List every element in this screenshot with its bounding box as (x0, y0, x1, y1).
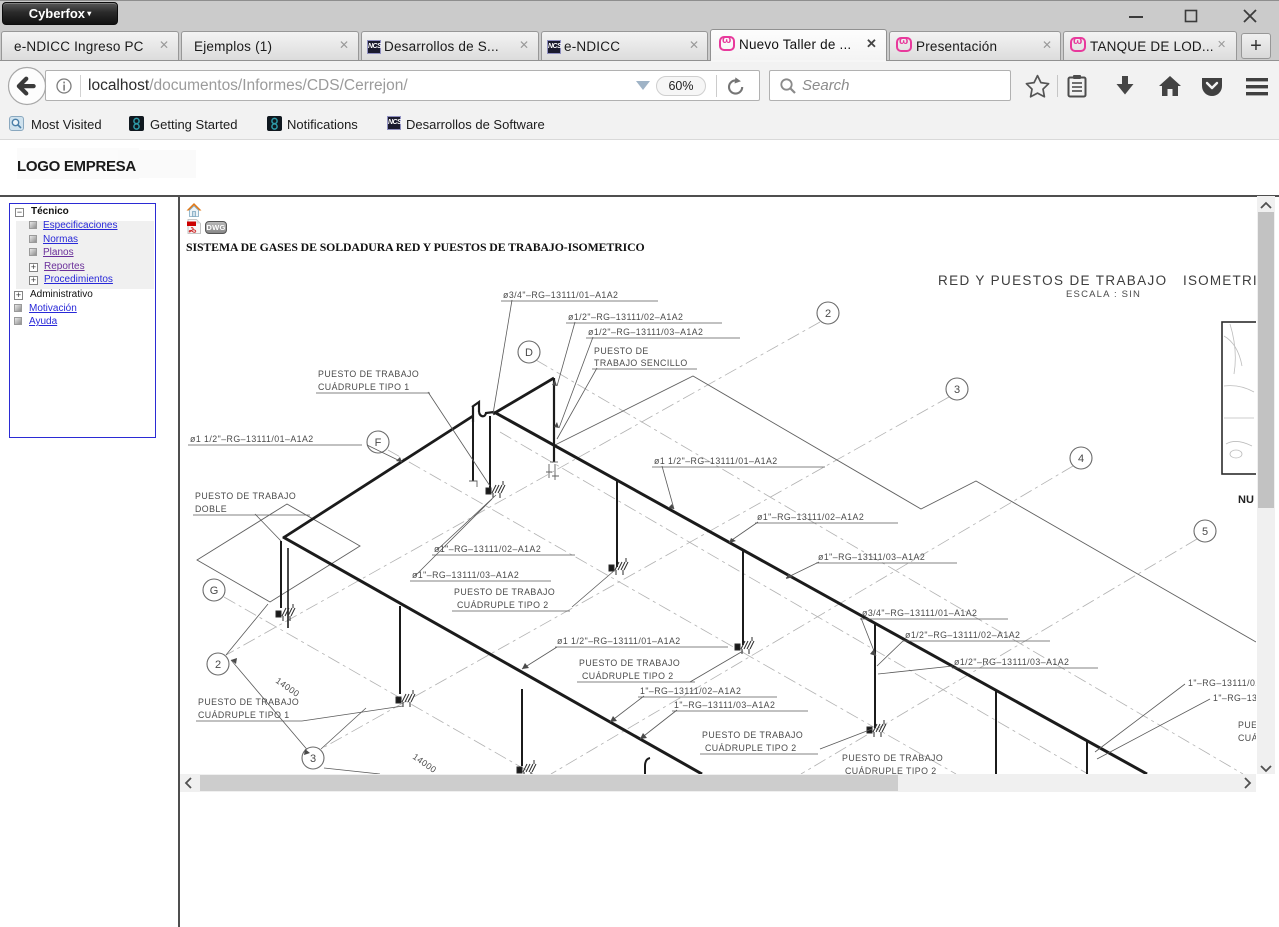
svg-text:1"–RG–13111/02–A1A2: 1"–RG–13111/02–A1A2 (1188, 678, 1256, 688)
svg-text:ø1"–RG–13111/02–A1A2: ø1"–RG–13111/02–A1A2 (434, 544, 541, 554)
svg-text:CUÁDRUPLE: CUÁDRUPLE (1238, 733, 1256, 743)
svg-text:ø1/2"–RG–13111/03–A1A2: ø1/2"–RG–13111/03–A1A2 (588, 327, 703, 337)
svg-text:NU: NU (1238, 494, 1254, 506)
svg-text:PUESTO DE TRABAJO: PUESTO DE TRABAJO (702, 730, 803, 740)
svg-text:CUÁDRUPLE TIPO 2: CUÁDRUPLE TIPO 2 (845, 766, 937, 774)
svg-text:ø3/4"–RG–13111/01–A1A2: ø3/4"–RG–13111/01–A1A2 (862, 608, 977, 618)
svg-text:5: 5 (1202, 526, 1208, 538)
svg-text:ø1"–RG–13111/03–A1A2: ø1"–RG–13111/03–A1A2 (412, 570, 519, 580)
svg-text:RED Y PUESTOS DE TRABAJO: RED Y PUESTOS DE TRABAJO (938, 273, 1167, 288)
svg-text:DOBLE: DOBLE (195, 504, 227, 514)
svg-text:ø1 1/2"–RG–13111/01–A1A2: ø1 1/2"–RG–13111/01–A1A2 (654, 456, 778, 466)
svg-text:CUÁDRUPLE TIPO 1: CUÁDRUPLE TIPO 1 (318, 382, 410, 392)
svg-text:3: 3 (310, 753, 316, 765)
svg-text:CUÁDRUPLE TIPO 2: CUÁDRUPLE TIPO 2 (457, 600, 549, 610)
svg-text:3: 3 (954, 384, 960, 396)
svg-text:F: F (375, 437, 382, 449)
svg-text:14000: 14000 (411, 751, 439, 774)
svg-text:PUESTO DE TRABAJO: PUESTO DE TRABAJO (842, 753, 943, 763)
svg-text:1"–RG–13111/02–A1A2: 1"–RG–13111/02–A1A2 (640, 686, 741, 696)
svg-text:ø1/2"–RG–13111/03–A1A2: ø1/2"–RG–13111/03–A1A2 (954, 657, 1069, 667)
svg-text:14000: 14000 (274, 675, 302, 699)
svg-text:D: D (525, 347, 533, 359)
svg-text:ø1 1/2"–RG–13111/01–A1A2: ø1 1/2"–RG–13111/01–A1A2 (190, 434, 314, 444)
svg-text:CUÁDRUPLE TIPO 2: CUÁDRUPLE TIPO 2 (582, 671, 674, 681)
svg-text:PUESTO DE TRABAJO: PUESTO DE TRABAJO (318, 369, 419, 379)
svg-text:PUESTO DE TRABAJO: PUESTO DE TRABAJO (195, 491, 296, 501)
svg-text:ø1"–RG–13111/02–A1A2: ø1"–RG–13111/02–A1A2 (757, 512, 864, 522)
svg-text:PUESTO DE TRABAJO: PUESTO DE TRABAJO (454, 587, 555, 597)
svg-text:PUESTO DE: PUESTO DE (1238, 720, 1256, 730)
svg-text:1"–RG–13111/03–A1A2: 1"–RG–13111/03–A1A2 (1213, 693, 1256, 703)
svg-text:2: 2 (825, 308, 831, 320)
svg-text:ESCALA : SIN: ESCALA : SIN (1066, 289, 1141, 300)
svg-text:ø1"–RG–13111/03–A1A2: ø1"–RG–13111/03–A1A2 (818, 552, 925, 562)
svg-text:G: G (210, 585, 219, 597)
svg-text:ø1/2"–RG–13111/02–A1A2: ø1/2"–RG–13111/02–A1A2 (568, 312, 683, 322)
svg-text:2: 2 (215, 659, 221, 671)
svg-text:PUESTO DE: PUESTO DE (594, 346, 649, 356)
svg-text:PUESTO DE TRABAJO: PUESTO DE TRABAJO (198, 697, 299, 707)
svg-text:4: 4 (1078, 453, 1084, 465)
svg-text:ø1/2"–RG–13111/02–A1A2: ø1/2"–RG–13111/02–A1A2 (905, 630, 1020, 640)
svg-text:PUESTO DE TRABAJO: PUESTO DE TRABAJO (579, 658, 680, 668)
svg-text:CUÁDRUPLE TIPO 2: CUÁDRUPLE TIPO 2 (705, 743, 797, 753)
svg-text:ø1 1/2"–RG–13111/01–A1A2: ø1 1/2"–RG–13111/01–A1A2 (557, 636, 681, 646)
svg-text:TRABAJO SENCILLO: TRABAJO SENCILLO (594, 358, 688, 368)
svg-text:ISOMETRICO: ISOMETRICO (1183, 273, 1256, 288)
svg-text:1"–RG–13111/03–A1A2: 1"–RG–13111/03–A1A2 (674, 700, 775, 710)
svg-text:ø3/4"–RG–13111/01–A1A2: ø3/4"–RG–13111/01–A1A2 (503, 290, 618, 300)
svg-text:CUÁDRUPLE TIPO 1: CUÁDRUPLE TIPO 1 (198, 710, 290, 720)
